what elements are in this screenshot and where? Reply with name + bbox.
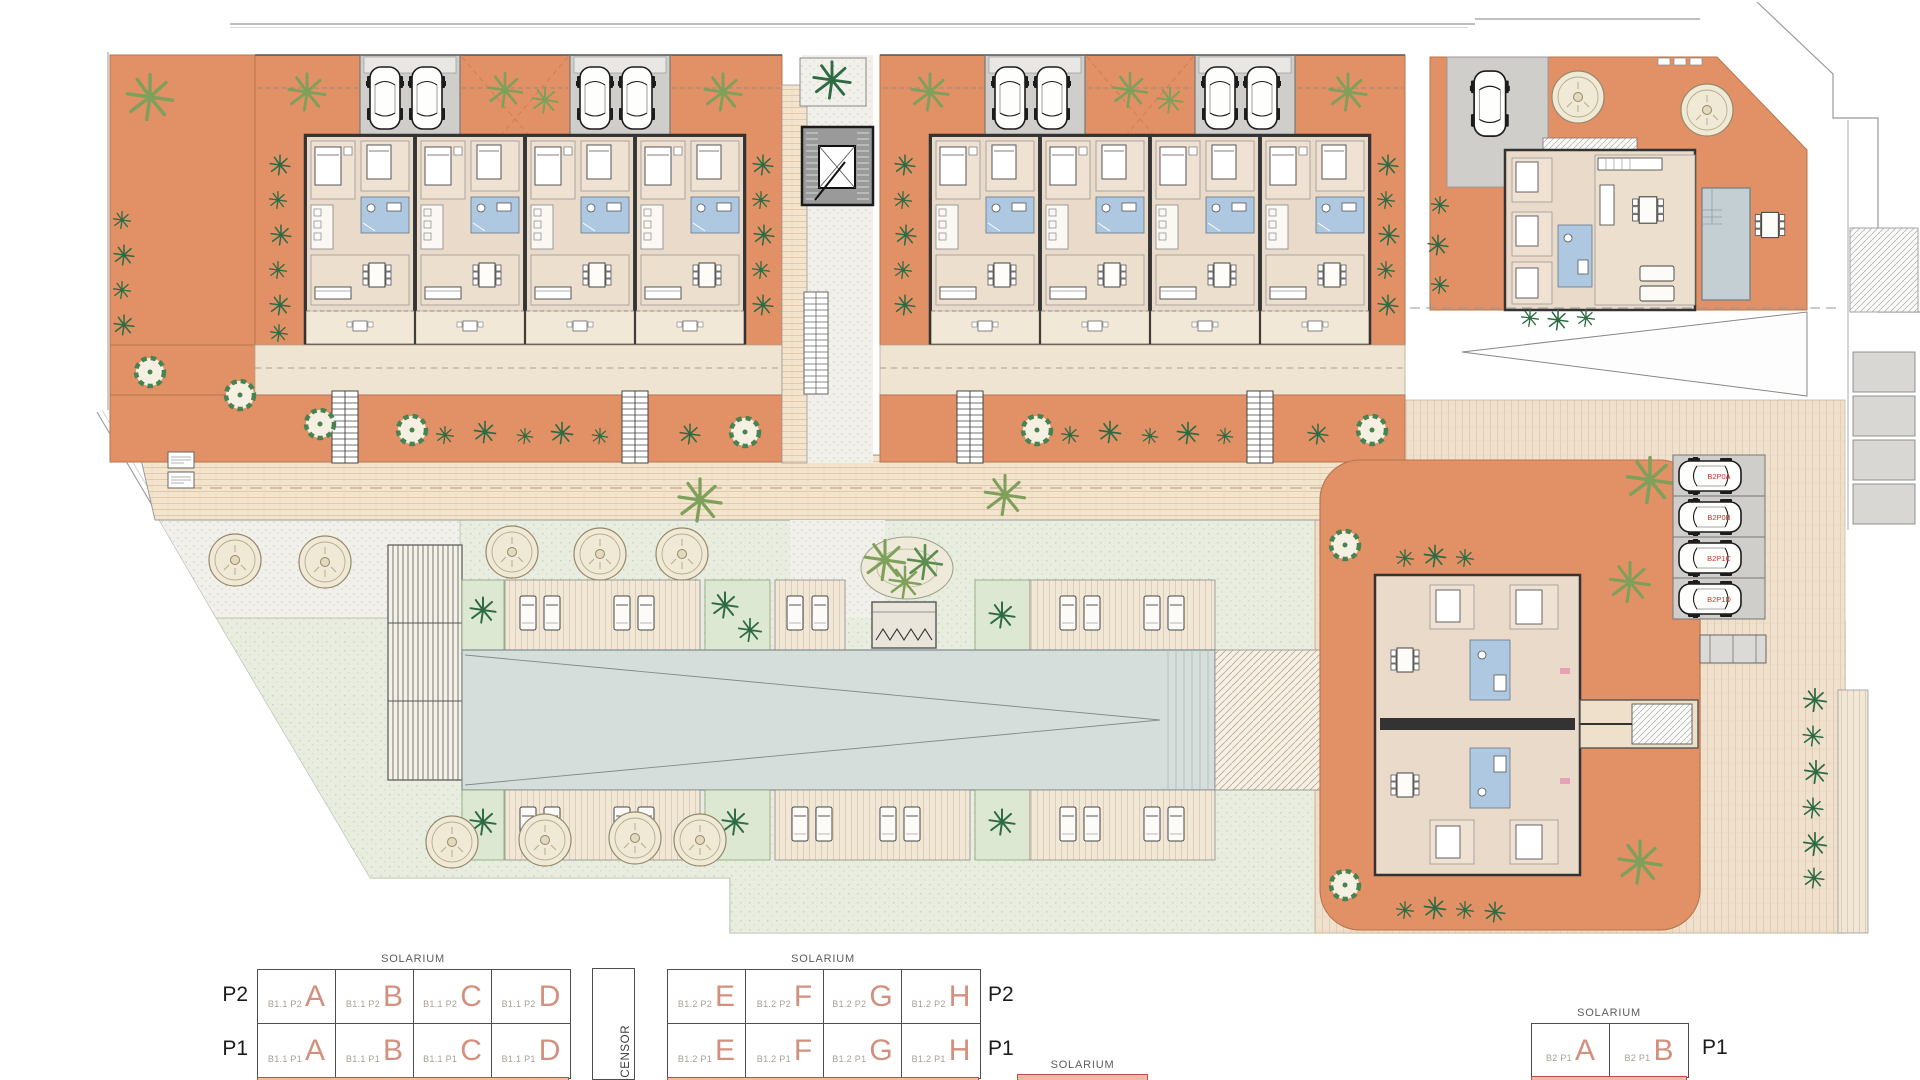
- elevator-legend-column: ESCALERA + ASCENSOR: [592, 968, 635, 1080]
- solarium-header-b11: SOLARIUM: [257, 953, 569, 965]
- utility-box: [1853, 396, 1915, 436]
- roof-box: [1690, 58, 1702, 65]
- stairs-icon: [1247, 391, 1273, 463]
- unit-letter: A: [305, 982, 325, 1012]
- villa-pool: [1702, 188, 1750, 300]
- shrub-icon: [1548, 310, 1568, 330]
- ramp-arrow: [1462, 312, 1807, 396]
- legend-cell[interactable]: B1.2 P2H: [902, 970, 980, 1024]
- bed: [1516, 590, 1542, 624]
- roof-box: [1658, 58, 1670, 65]
- tree-wreath-icon: [306, 410, 334, 438]
- pergola: [388, 545, 462, 780]
- tree-icon: [674, 814, 726, 866]
- level-label-p2-right: P2: [988, 983, 1014, 1007]
- shrub-icon: [1522, 310, 1539, 327]
- legend-cell[interactable]: B2 P1A: [1532, 1024, 1610, 1077]
- sun-deck: [775, 580, 845, 650]
- tree-wreath-icon: [1358, 416, 1386, 444]
- stair-elevator-core: [782, 55, 873, 463]
- parking-label: B2P0A: [1707, 472, 1730, 481]
- unit-code: B1.1 P1: [346, 1054, 380, 1064]
- legend-cell[interactable]: B1.1 P1C: [414, 1024, 492, 1078]
- planter: [705, 580, 770, 650]
- car-icon: [618, 67, 656, 129]
- lounger-icon: [1060, 596, 1076, 630]
- lounger-icon: [1168, 596, 1184, 630]
- unit-letter: E: [715, 1036, 735, 1066]
- apartment-unit: [1041, 136, 1149, 344]
- bed: [1516, 268, 1538, 298]
- palm-feature: [861, 537, 953, 599]
- p0-strip-bottom-center: [1017, 1074, 1148, 1080]
- dining-table-icon: [1391, 648, 1419, 672]
- apartment-unit: [526, 136, 634, 344]
- main-pool: [462, 650, 1215, 790]
- unit-letter: H: [949, 1036, 971, 1066]
- terrace-left-garden: [110, 55, 255, 345]
- shrub-icon: [1578, 310, 1595, 327]
- bed: [1516, 162, 1538, 192]
- legend-cell[interactable]: B1.1 P1D: [492, 1024, 570, 1078]
- sun-deck: [1030, 580, 1215, 650]
- unit-letter: C: [460, 982, 482, 1012]
- utility-box: [1853, 484, 1915, 524]
- solarium-header-b2: SOLARIUM: [1531, 1007, 1687, 1019]
- legend-cell[interactable]: B1.1 P2C: [414, 970, 492, 1024]
- tree-icon: [519, 814, 571, 866]
- legend-cell[interactable]: B1.1 P1B: [336, 1024, 414, 1078]
- unit-code: B1.1 P1: [423, 1054, 457, 1064]
- tree-wreath-icon: [1331, 531, 1359, 559]
- lounger-icon: [1640, 266, 1674, 281]
- tree-icon: [609, 812, 661, 864]
- unit-code: B1.2 P2: [757, 999, 791, 1009]
- legend-table-b12: B1.2 P2E B1.2 P2F B1.2 P2G B1.2 P2H B1.2…: [667, 969, 981, 1079]
- apartment-unit: [416, 136, 524, 344]
- unit-code: B1.1 P1: [268, 1054, 302, 1064]
- pool-pavilion: [872, 602, 936, 648]
- lounger-icon: [520, 596, 536, 630]
- tree-wreath-icon: [136, 358, 164, 386]
- level-label-p2: P2: [204, 983, 248, 1007]
- lounger-icon: [816, 807, 832, 841]
- entry-stairs: [1632, 704, 1692, 744]
- tree-wreath-icon: [1331, 871, 1359, 899]
- unit-code: B1.2 P1: [757, 1054, 791, 1064]
- unit-code: B1.2 P1: [678, 1054, 712, 1064]
- bed: [1516, 216, 1538, 246]
- lounger-icon: [544, 596, 560, 630]
- bed: [1436, 590, 1460, 622]
- b2-parking: B2P0A B2P0B B2P1C B2P1D: [1673, 455, 1765, 619]
- lounger-icon: [1084, 596, 1100, 630]
- unit-letter: D: [539, 982, 561, 1012]
- legend-cell[interactable]: B1.1 P2B: [336, 970, 414, 1024]
- unit-code: B1.2 P2: [832, 999, 866, 1009]
- unit-letter: H: [949, 982, 971, 1012]
- car-icon: [1201, 67, 1239, 129]
- lounger-icon: [1168, 807, 1184, 841]
- legend-cell[interactable]: B2 P1B: [1610, 1024, 1688, 1077]
- unit-letter: A: [1575, 1036, 1595, 1066]
- level-label-p1-b2: P1: [1702, 1036, 1728, 1060]
- tree-icon: [574, 528, 626, 580]
- apartment-unit: [931, 136, 1039, 344]
- tree-wreath-icon: [731, 418, 759, 446]
- car-icon: [991, 67, 1029, 129]
- lounger-icon: [812, 596, 828, 630]
- unit-letter: B: [1654, 1036, 1674, 1066]
- solarium-header-b12: SOLARIUM: [667, 953, 979, 965]
- unit-letter: B: [383, 1036, 403, 1066]
- unit-code: B2 P1: [1624, 1053, 1650, 1063]
- legend-cell[interactable]: B1.2 P2G: [824, 970, 902, 1024]
- car-icon: [408, 67, 446, 129]
- unit-code: B1.1 P1: [502, 1054, 536, 1064]
- apartment-unit: [1261, 136, 1369, 344]
- stairs-icon: [957, 391, 983, 463]
- hatched-strip: [1838, 690, 1868, 933]
- unit-letter: B: [383, 982, 403, 1012]
- unit-code: B1.1 P2: [268, 999, 302, 1009]
- unit-letter: G: [869, 1036, 892, 1066]
- legend-cell[interactable]: B1.1 P2A: [258, 970, 336, 1024]
- legend-cell[interactable]: B1.1 P1A: [258, 1024, 336, 1078]
- parking-label: B2P0B: [1707, 513, 1730, 522]
- car-icon: [366, 67, 404, 129]
- car-icon: [576, 67, 614, 129]
- tree-icon: [209, 534, 261, 586]
- unit-letter: E: [715, 982, 735, 1012]
- elevator-legend-label: ESCALERA + ASCENSOR: [620, 969, 632, 1080]
- unit-code: B1.1 P2: [346, 999, 380, 1009]
- legend-cell[interactable]: B1.2 P1F: [746, 1024, 824, 1078]
- tree-icon: [1681, 84, 1733, 136]
- parking-label: B2P1C: [1707, 554, 1731, 563]
- tree-icon: [656, 528, 708, 580]
- legend-cell[interactable]: B1.1 P2D: [492, 970, 570, 1024]
- garden-strip: [110, 395, 782, 462]
- sign-board: [168, 472, 194, 488]
- walkway-strip: [255, 345, 782, 395]
- legend-cell[interactable]: B1.2 P2F: [746, 970, 824, 1024]
- apartment-unit: [1151, 136, 1259, 344]
- unit-letter: F: [794, 982, 812, 1012]
- car-icon: [1470, 71, 1510, 136]
- unit-letter: G: [869, 982, 892, 1012]
- apartment-unit: [636, 136, 744, 344]
- tree-wreath-icon: [1023, 416, 1051, 444]
- building-b2-lower: B2P0A B2P0B B2P1C B2P1D: [1320, 455, 1766, 930]
- unit-tag: [1560, 668, 1570, 674]
- parking-label: B2P1D: [1707, 595, 1731, 604]
- bathroom: [1558, 225, 1592, 287]
- tree-wreath-icon: [226, 381, 254, 409]
- gravel-corridor: [802, 55, 873, 463]
- dining-table-icon: [1633, 197, 1664, 223]
- unit-code: B1.2 P2: [678, 999, 712, 1009]
- unit-code: B1.2 P1: [832, 1054, 866, 1064]
- bed: [1516, 825, 1542, 859]
- tree-icon: [426, 816, 478, 868]
- pool-side-deck: [1215, 650, 1330, 790]
- legend-cell[interactable]: B1.2 P2E: [668, 970, 746, 1024]
- walkway-strip: [880, 345, 1405, 395]
- site-plan-drawing: B2P0A B2P0B B2P1C B2P1D: [0, 0, 1920, 1080]
- car-icon: [1243, 67, 1281, 129]
- utility-box: [1853, 352, 1915, 392]
- lounger-icon: [787, 596, 803, 630]
- solarium-header-bottom: SOLARIUM: [1017, 1059, 1148, 1071]
- unit-code: B1.2 P1: [912, 1054, 946, 1064]
- level-label-p1: P1: [204, 1037, 248, 1061]
- lounger-icon: [1144, 596, 1160, 630]
- unit-code: B1.1 P2: [423, 999, 457, 1009]
- unit-letter: D: [539, 1036, 561, 1066]
- tree-icon: [486, 526, 538, 578]
- legend-cell[interactable]: B1.2 P1E: [668, 1024, 746, 1078]
- utility-box: [1853, 440, 1915, 480]
- legend-table-b2: B2 P1A B2 P1B: [1531, 1023, 1689, 1078]
- party-wall: [1380, 718, 1575, 730]
- lounger-icon: [1060, 807, 1076, 841]
- site-plan-page: B2P0A B2P0B B2P1C B2P1D SOLARIUM SOLARIU…: [0, 0, 1920, 1080]
- legend-cell[interactable]: B1.2 P1G: [824, 1024, 902, 1078]
- unit-letter: F: [794, 1036, 812, 1066]
- villa-b2-upper: [1428, 57, 1807, 330]
- unit-letter: A: [305, 1036, 325, 1066]
- apartment-unit: [306, 136, 414, 344]
- stairs-icon: [622, 391, 648, 463]
- lounger-icon: [904, 807, 920, 841]
- unit-code: B1.1 P2: [502, 999, 536, 1009]
- p0-strip-b2: [1531, 1076, 1687, 1080]
- level-label-p1-right: P1: [988, 1037, 1014, 1061]
- building-b11: [110, 55, 782, 463]
- sofa: [1600, 185, 1614, 225]
- legend-table-b11: B1.1 P2A B1.1 P2B B1.1 P2C B1.1 P2D B1.1…: [257, 969, 571, 1079]
- unit-tag: [1560, 778, 1570, 784]
- hatched-strip: [1850, 228, 1918, 312]
- lounger-icon: [880, 807, 896, 841]
- sun-deck: [1030, 790, 1215, 860]
- tree-icon: [1552, 71, 1604, 123]
- outdoor-table-icon: [1755, 212, 1784, 237]
- lounger-icon: [1084, 807, 1100, 841]
- unit-code: B1.2 P2: [912, 999, 946, 1009]
- access-road: [1410, 308, 1840, 396]
- lounger-icon: [614, 596, 630, 630]
- dining-table-icon: [1391, 773, 1419, 797]
- lounger-icon: [638, 596, 654, 630]
- tree-wreath-icon: [398, 416, 426, 444]
- sign-board: [168, 452, 194, 468]
- lounger-icon: [792, 807, 808, 841]
- car-icon: [1033, 67, 1071, 129]
- lounger-icon: [1640, 286, 1674, 301]
- tree-icon: [299, 536, 351, 588]
- unit-letter: C: [460, 1036, 482, 1066]
- unit-code: B2 P1: [1546, 1053, 1572, 1063]
- building-b12: [880, 55, 1405, 463]
- bed: [1436, 826, 1460, 858]
- lounger-icon: [1144, 807, 1160, 841]
- roof-box: [1674, 58, 1686, 65]
- legend-cell[interactable]: B1.2 P1H: [902, 1024, 980, 1078]
- living-room: [1595, 155, 1695, 305]
